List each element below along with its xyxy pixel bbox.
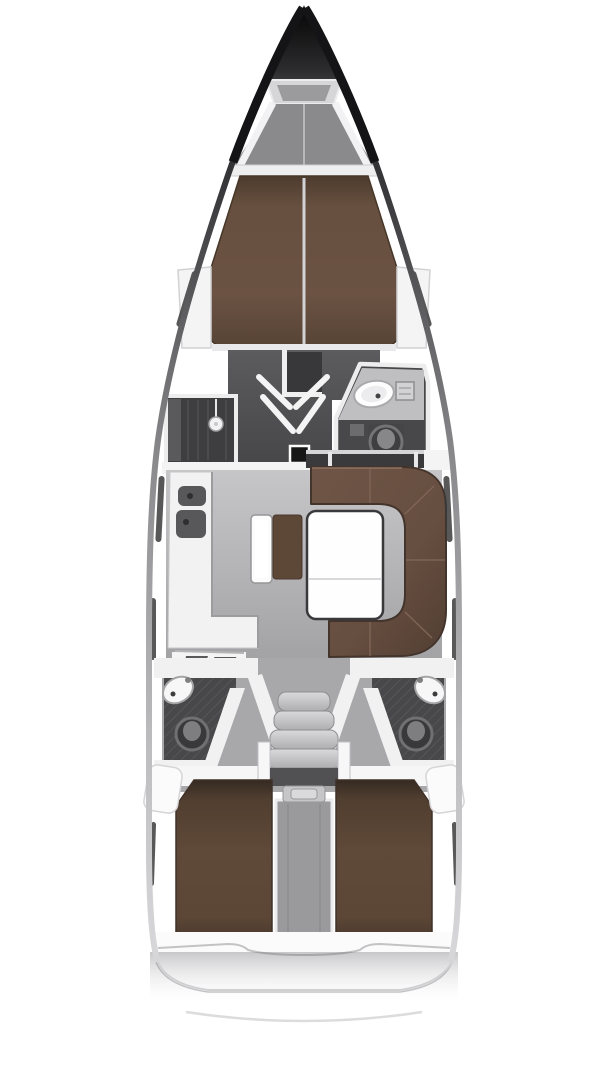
step-4 (266, 749, 342, 768)
stair-landing (270, 768, 338, 786)
aft-cabin-starboard (336, 780, 432, 936)
post-wall-bottom (282, 392, 322, 397)
settee-bench-brown (273, 515, 302, 579)
faucet-aft-port (185, 677, 191, 683)
anchor-locker-inner (277, 85, 331, 101)
sink-2-drain (183, 519, 189, 525)
toilet-aft-port-lid (183, 721, 201, 741)
shower-room (166, 396, 236, 464)
head-port-top-wall (154, 658, 258, 678)
engine-hatch-handle (291, 789, 317, 799)
sink-aft-port-drain (171, 692, 176, 697)
aft-section (143, 658, 466, 946)
transom (150, 932, 458, 1021)
berth-footboard (212, 344, 396, 351)
locker-divider (328, 452, 332, 468)
engine-column (276, 800, 332, 946)
step-1 (278, 692, 330, 711)
locker-band (306, 452, 424, 468)
shower-shelf (168, 399, 181, 461)
locker-divider (414, 452, 418, 468)
saloon (166, 467, 446, 670)
head-shelf (396, 382, 414, 400)
sink-aft-stbd-drain (433, 692, 438, 697)
step-2 (274, 711, 334, 730)
head-cabinet (350, 424, 364, 436)
stern-curve (186, 1012, 422, 1021)
galley-sink-2 (176, 510, 206, 538)
engine-compartment (276, 786, 332, 946)
toilet-aft-stbd-lid (407, 721, 425, 741)
transom-wall (154, 932, 454, 952)
settee-cushion (255, 520, 268, 578)
sink-forward-drain (376, 394, 381, 399)
aft-cabin-port (176, 780, 272, 936)
head-stbd-top-wall (350, 658, 454, 678)
deck-beam (230, 165, 378, 176)
swim-platform-shadow (150, 952, 458, 1006)
yacht-deck-plan (0, 0, 608, 1080)
deck-plan-canvas (0, 0, 608, 1080)
step-3 (270, 730, 338, 749)
saloon-table (307, 511, 383, 619)
faucet-aft-stbd (417, 677, 423, 683)
bulkhead-starboard (424, 450, 452, 470)
toilet-forward-lid (377, 429, 395, 449)
locker-top-trim (306, 450, 424, 454)
shower-head-center (214, 422, 218, 426)
post-wall-left (282, 350, 287, 397)
bow (230, 6, 378, 176)
sink-1-drain (187, 493, 193, 499)
